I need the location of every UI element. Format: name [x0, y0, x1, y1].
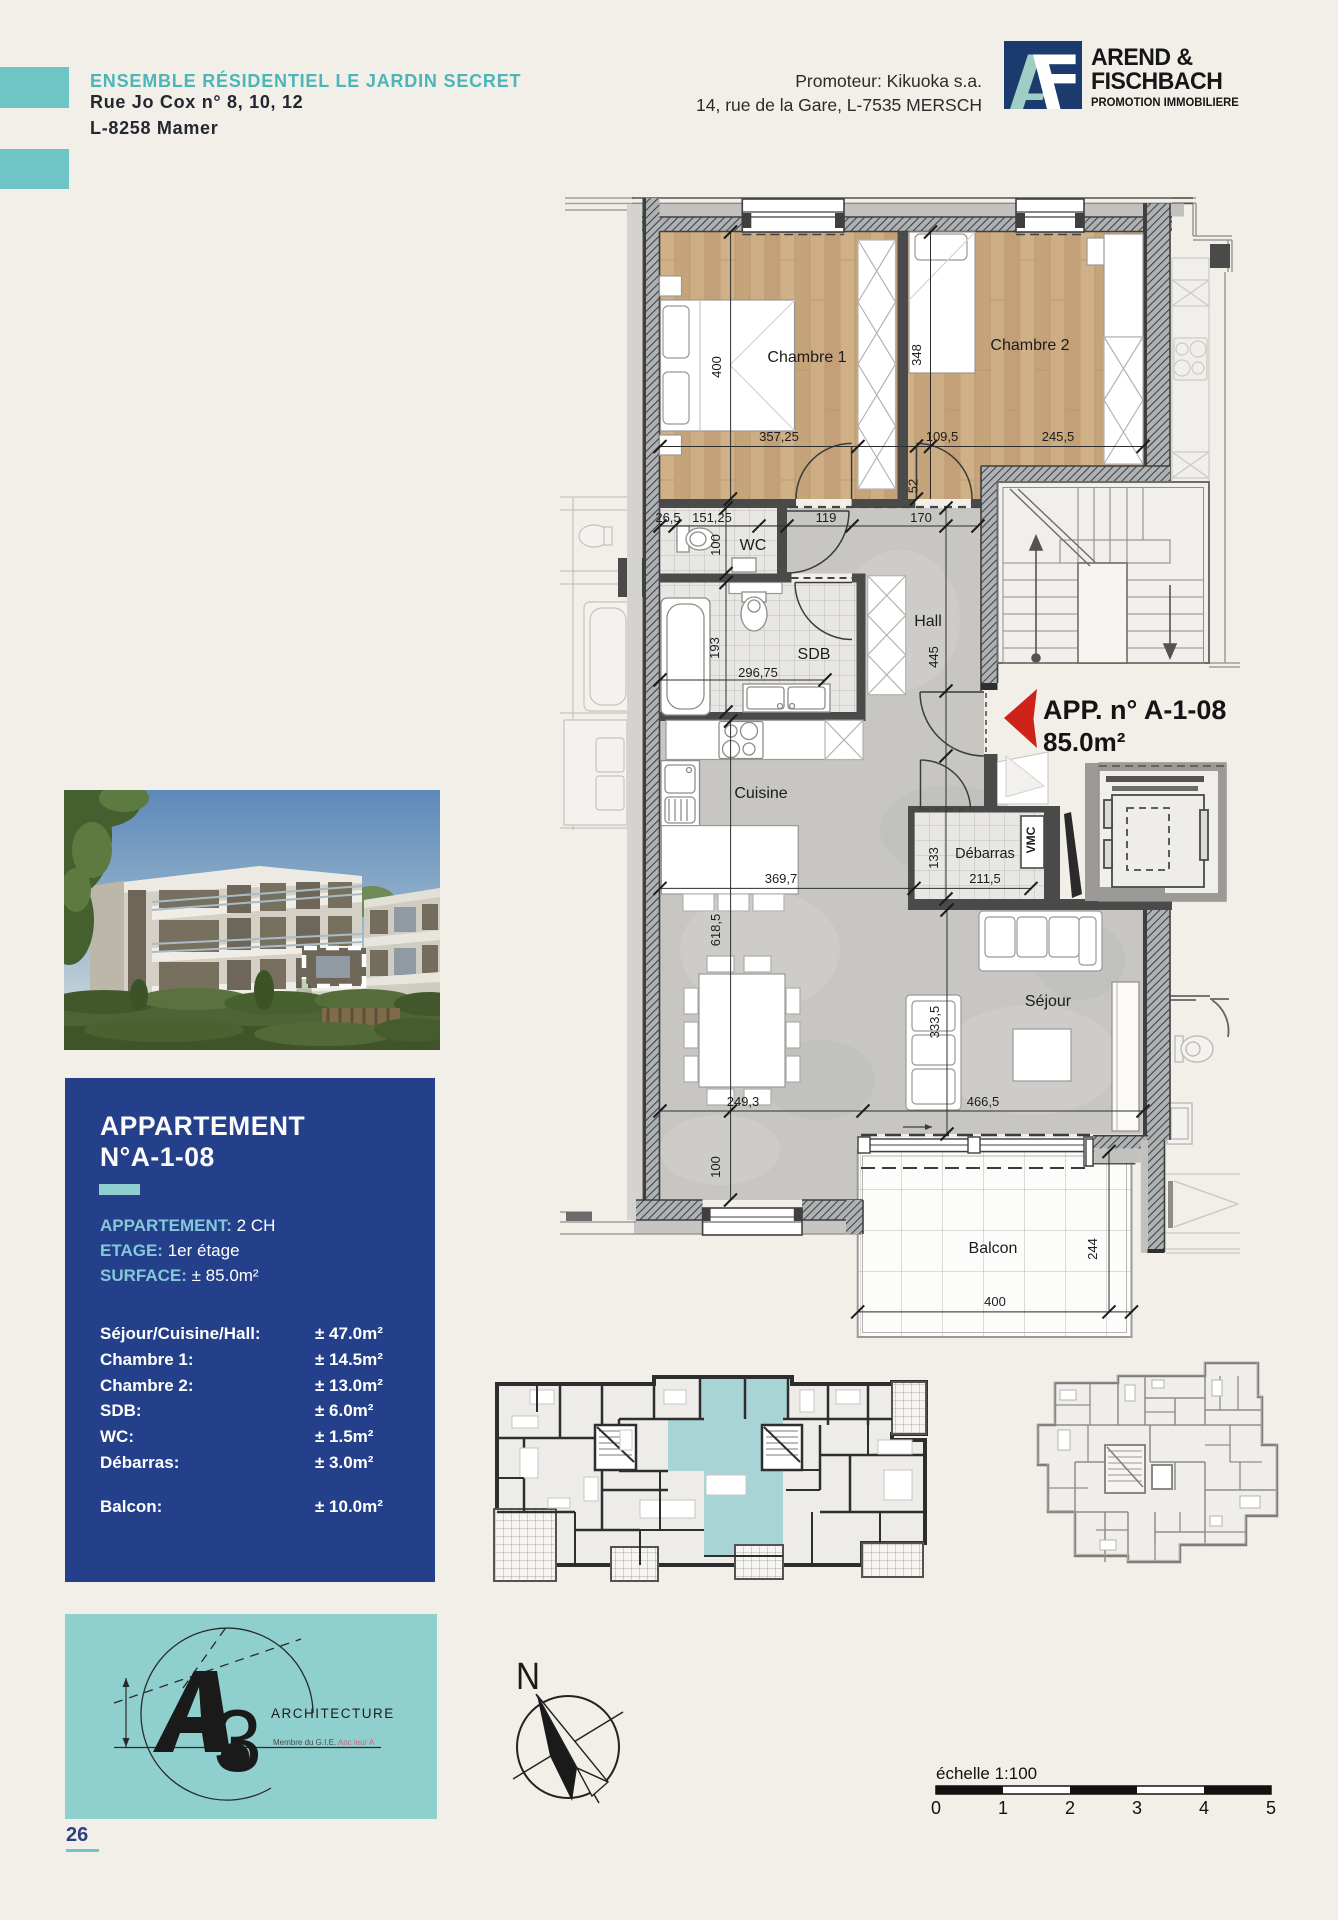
- svg-text:109,5: 109,5: [926, 429, 959, 444]
- svg-text:193: 193: [707, 637, 722, 659]
- svg-text:52: 52: [906, 479, 921, 493]
- svg-text:85.0m²: 85.0m²: [1043, 727, 1126, 757]
- svg-text:400: 400: [984, 1294, 1006, 1309]
- svg-text:Hall: Hall: [914, 613, 942, 630]
- svg-text:26,5: 26,5: [655, 510, 680, 525]
- svg-text:245,5: 245,5: [1042, 429, 1075, 444]
- svg-text:119: 119: [816, 510, 837, 525]
- svg-text:133: 133: [926, 847, 941, 869]
- svg-text:N: N: [516, 1656, 540, 1698]
- svg-text:244: 244: [1085, 1238, 1100, 1260]
- svg-text:170: 170: [910, 510, 932, 525]
- svg-text:618,5: 618,5: [708, 914, 723, 947]
- svg-text:Débarras: Débarras: [955, 846, 1015, 862]
- svg-text:3: 3: [1132, 1798, 1142, 1818]
- svg-text:2: 2: [1065, 1798, 1075, 1818]
- svg-text:296,75: 296,75: [738, 665, 778, 680]
- svg-text:445: 445: [926, 646, 941, 668]
- svg-text:211,5: 211,5: [969, 871, 1001, 886]
- svg-text:333,5: 333,5: [927, 1006, 942, 1039]
- svg-text:100: 100: [708, 534, 723, 556]
- svg-text:348: 348: [909, 344, 924, 366]
- svg-text:APP. n° A-1-08: APP. n° A-1-08: [1043, 695, 1226, 725]
- svg-text:5: 5: [1266, 1798, 1276, 1818]
- svg-text:ARCHITECTURE: ARCHITECTURE: [271, 1706, 395, 1721]
- svg-text:4: 4: [1199, 1798, 1209, 1818]
- svg-text:Cuisine: Cuisine: [734, 785, 787, 802]
- svg-text:WC: WC: [740, 537, 767, 554]
- svg-text:1: 1: [998, 1798, 1008, 1818]
- svg-text:249,3: 249,3: [727, 1094, 760, 1109]
- svg-text:0: 0: [931, 1798, 941, 1818]
- svg-text:466,5: 466,5: [967, 1094, 1000, 1109]
- svg-text:400: 400: [709, 356, 724, 378]
- svg-text:151,25: 151,25: [692, 510, 732, 525]
- svg-text:Séjour: Séjour: [1025, 993, 1072, 1010]
- svg-text:369,7: 369,7: [765, 871, 798, 886]
- svg-text:Balcon: Balcon: [969, 1240, 1018, 1257]
- svg-text:SDB: SDB: [798, 646, 831, 663]
- svg-text:Chambre 1: Chambre 1: [767, 349, 846, 366]
- svg-text:100: 100: [708, 1156, 723, 1178]
- svg-text:Membre du G.I.E. Anc leur A: Membre du G.I.E. Anc leur A: [273, 1738, 375, 1747]
- svg-text:357,25: 357,25: [759, 429, 799, 444]
- svg-text:VMC: VMC: [1024, 826, 1038, 853]
- svg-text:3: 3: [213, 1691, 262, 1790]
- svg-text:Chambre 2: Chambre 2: [990, 337, 1069, 354]
